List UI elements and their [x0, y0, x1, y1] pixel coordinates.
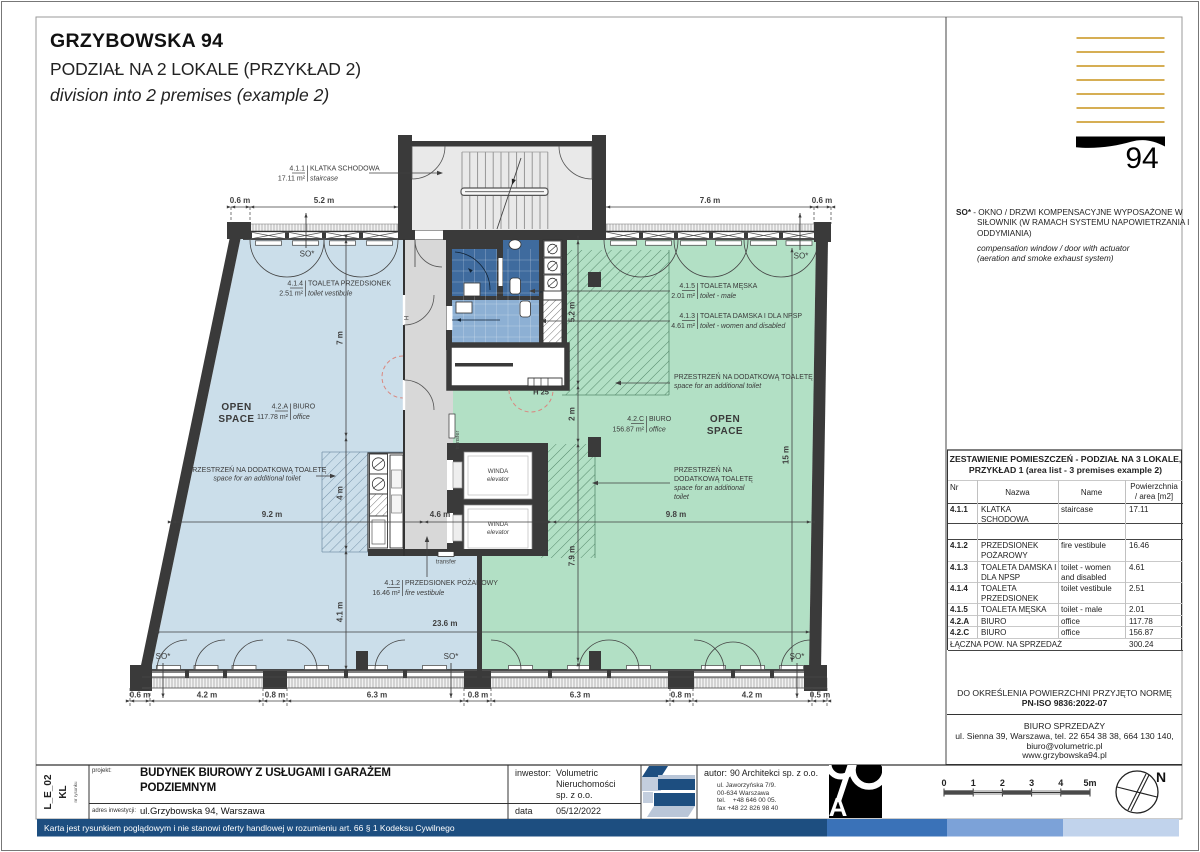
- svg-text:1: 1: [971, 778, 976, 788]
- svg-text:4: 4: [1058, 778, 1063, 788]
- svg-text:0: 0: [941, 778, 946, 788]
- svg-text:Karta jest rysunkiem poglądowy: Karta jest rysunkiem poglądowym i nie st…: [44, 823, 455, 833]
- svg-text:nr rysunku: nr rysunku: [73, 781, 78, 803]
- svg-text:A: A: [829, 792, 848, 822]
- svg-text:2: 2: [1000, 778, 1005, 788]
- svg-text:3: 3: [1029, 778, 1034, 788]
- svg-text:94: 94: [1125, 142, 1158, 175]
- svg-text:KL: KL: [58, 785, 69, 798]
- svg-text:5m: 5m: [1083, 778, 1096, 788]
- svg-text:N: N: [1156, 769, 1166, 785]
- svg-text:L_E_02: L_E_02: [43, 774, 54, 809]
